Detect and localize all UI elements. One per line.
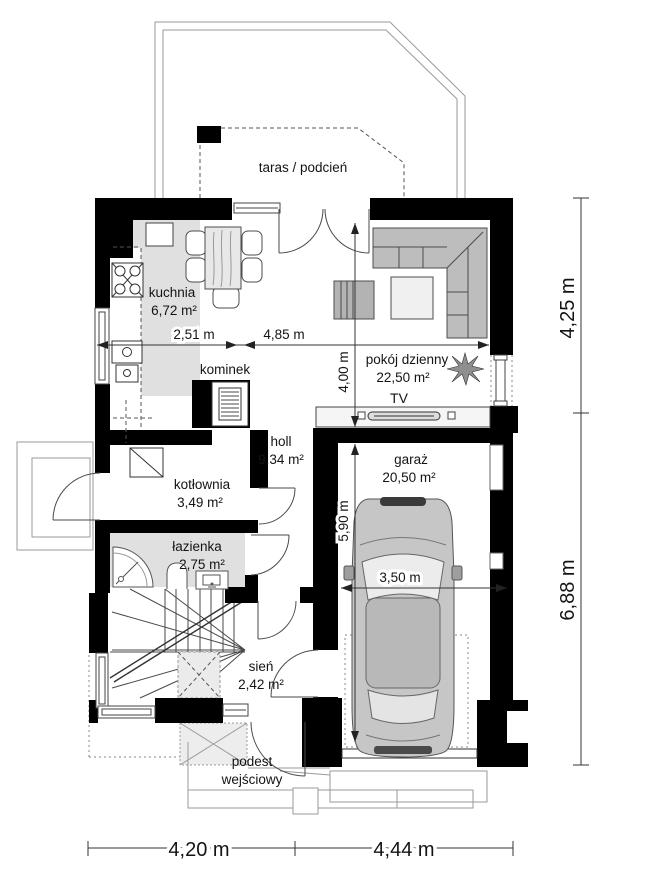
dim-bottom-left: 4,20 m (168, 839, 229, 861)
coffee-table (391, 277, 433, 319)
label-podest-2: wejściowy (221, 772, 283, 787)
stove (112, 263, 143, 297)
staircase (110, 589, 245, 698)
car-front-bumper (380, 497, 426, 506)
car-rear-bumper (374, 746, 432, 754)
label-sien: sień (249, 659, 274, 674)
chair (242, 258, 262, 282)
sien-window (223, 704, 248, 716)
area-kuchnia: 6,72 m² (151, 303, 197, 318)
label-podest-1: podest (232, 754, 273, 769)
label-pokoj-dzienny: pokój dzienny (366, 352, 449, 367)
dim-right-top: 4,25 m (557, 277, 579, 338)
bathroom-sink (196, 571, 228, 589)
boiler-room-door (259, 488, 295, 524)
dim-living-width: 4,85 m (263, 327, 304, 342)
label-holl: holl (270, 434, 291, 449)
dim-living-depth: 4,00 m (336, 351, 351, 392)
fridge (146, 223, 173, 246)
area-holl: 9,34 m² (258, 452, 304, 467)
terrace-sidelight-window (234, 203, 280, 213)
floor-plan-drawing: taras / podcień kuchnia 6,72 m² kominek … (0, 0, 660, 881)
kitchen-sink (112, 341, 142, 382)
dim-right-bottom: 6,88 m (557, 559, 579, 620)
dim-garage-length: 5,90 m (336, 500, 351, 541)
dim-kitchen-width: 2,51 m (173, 327, 214, 342)
bathroom-door (251, 535, 289, 575)
floor-plan-page: taras / podcień kuchnia 6,72 m² kominek … (0, 0, 660, 881)
tv-cabinet (316, 407, 490, 427)
label-tv: TV (390, 390, 409, 406)
label-garaz: garaż (394, 452, 428, 467)
car-mirror (452, 566, 462, 580)
living-room-window (491, 355, 512, 406)
area-garaz: 20,50 m² (382, 470, 436, 485)
car-roof (366, 598, 440, 688)
bottom-left-window (98, 706, 155, 718)
entry-pillar (293, 788, 318, 814)
label-taras: taras / podcień (259, 160, 348, 175)
chair (242, 231, 262, 255)
chair (186, 258, 206, 282)
label-kuchnia: kuchnia (149, 285, 196, 300)
car (344, 497, 462, 757)
area-kotlownia: 3,49 m² (177, 495, 223, 510)
area-lazienka: 2,75 m² (179, 557, 225, 572)
dim-garage-width: 3,50 m (379, 570, 420, 585)
label-kotlownia: kotłownia (174, 477, 231, 492)
boiler (130, 448, 163, 477)
star-symbol (447, 353, 484, 385)
chair (186, 231, 206, 255)
car-mirror (344, 566, 354, 580)
label-kominek: kominek (200, 362, 251, 377)
dim-bottom-right: 4,44 m (373, 839, 434, 861)
dining-table (205, 227, 241, 289)
stair-window (96, 653, 108, 708)
terrace-column (197, 126, 221, 143)
hall-to-vestibule-door (258, 601, 296, 639)
driveway (330, 771, 487, 802)
fireplace (212, 382, 248, 426)
armchair (334, 281, 374, 319)
chair (213, 287, 239, 308)
area-sien: 2,42 m² (238, 677, 284, 692)
area-pokoj-dzienny: 22,50 m² (376, 370, 430, 385)
label-lazienka: łazienka (172, 539, 222, 554)
